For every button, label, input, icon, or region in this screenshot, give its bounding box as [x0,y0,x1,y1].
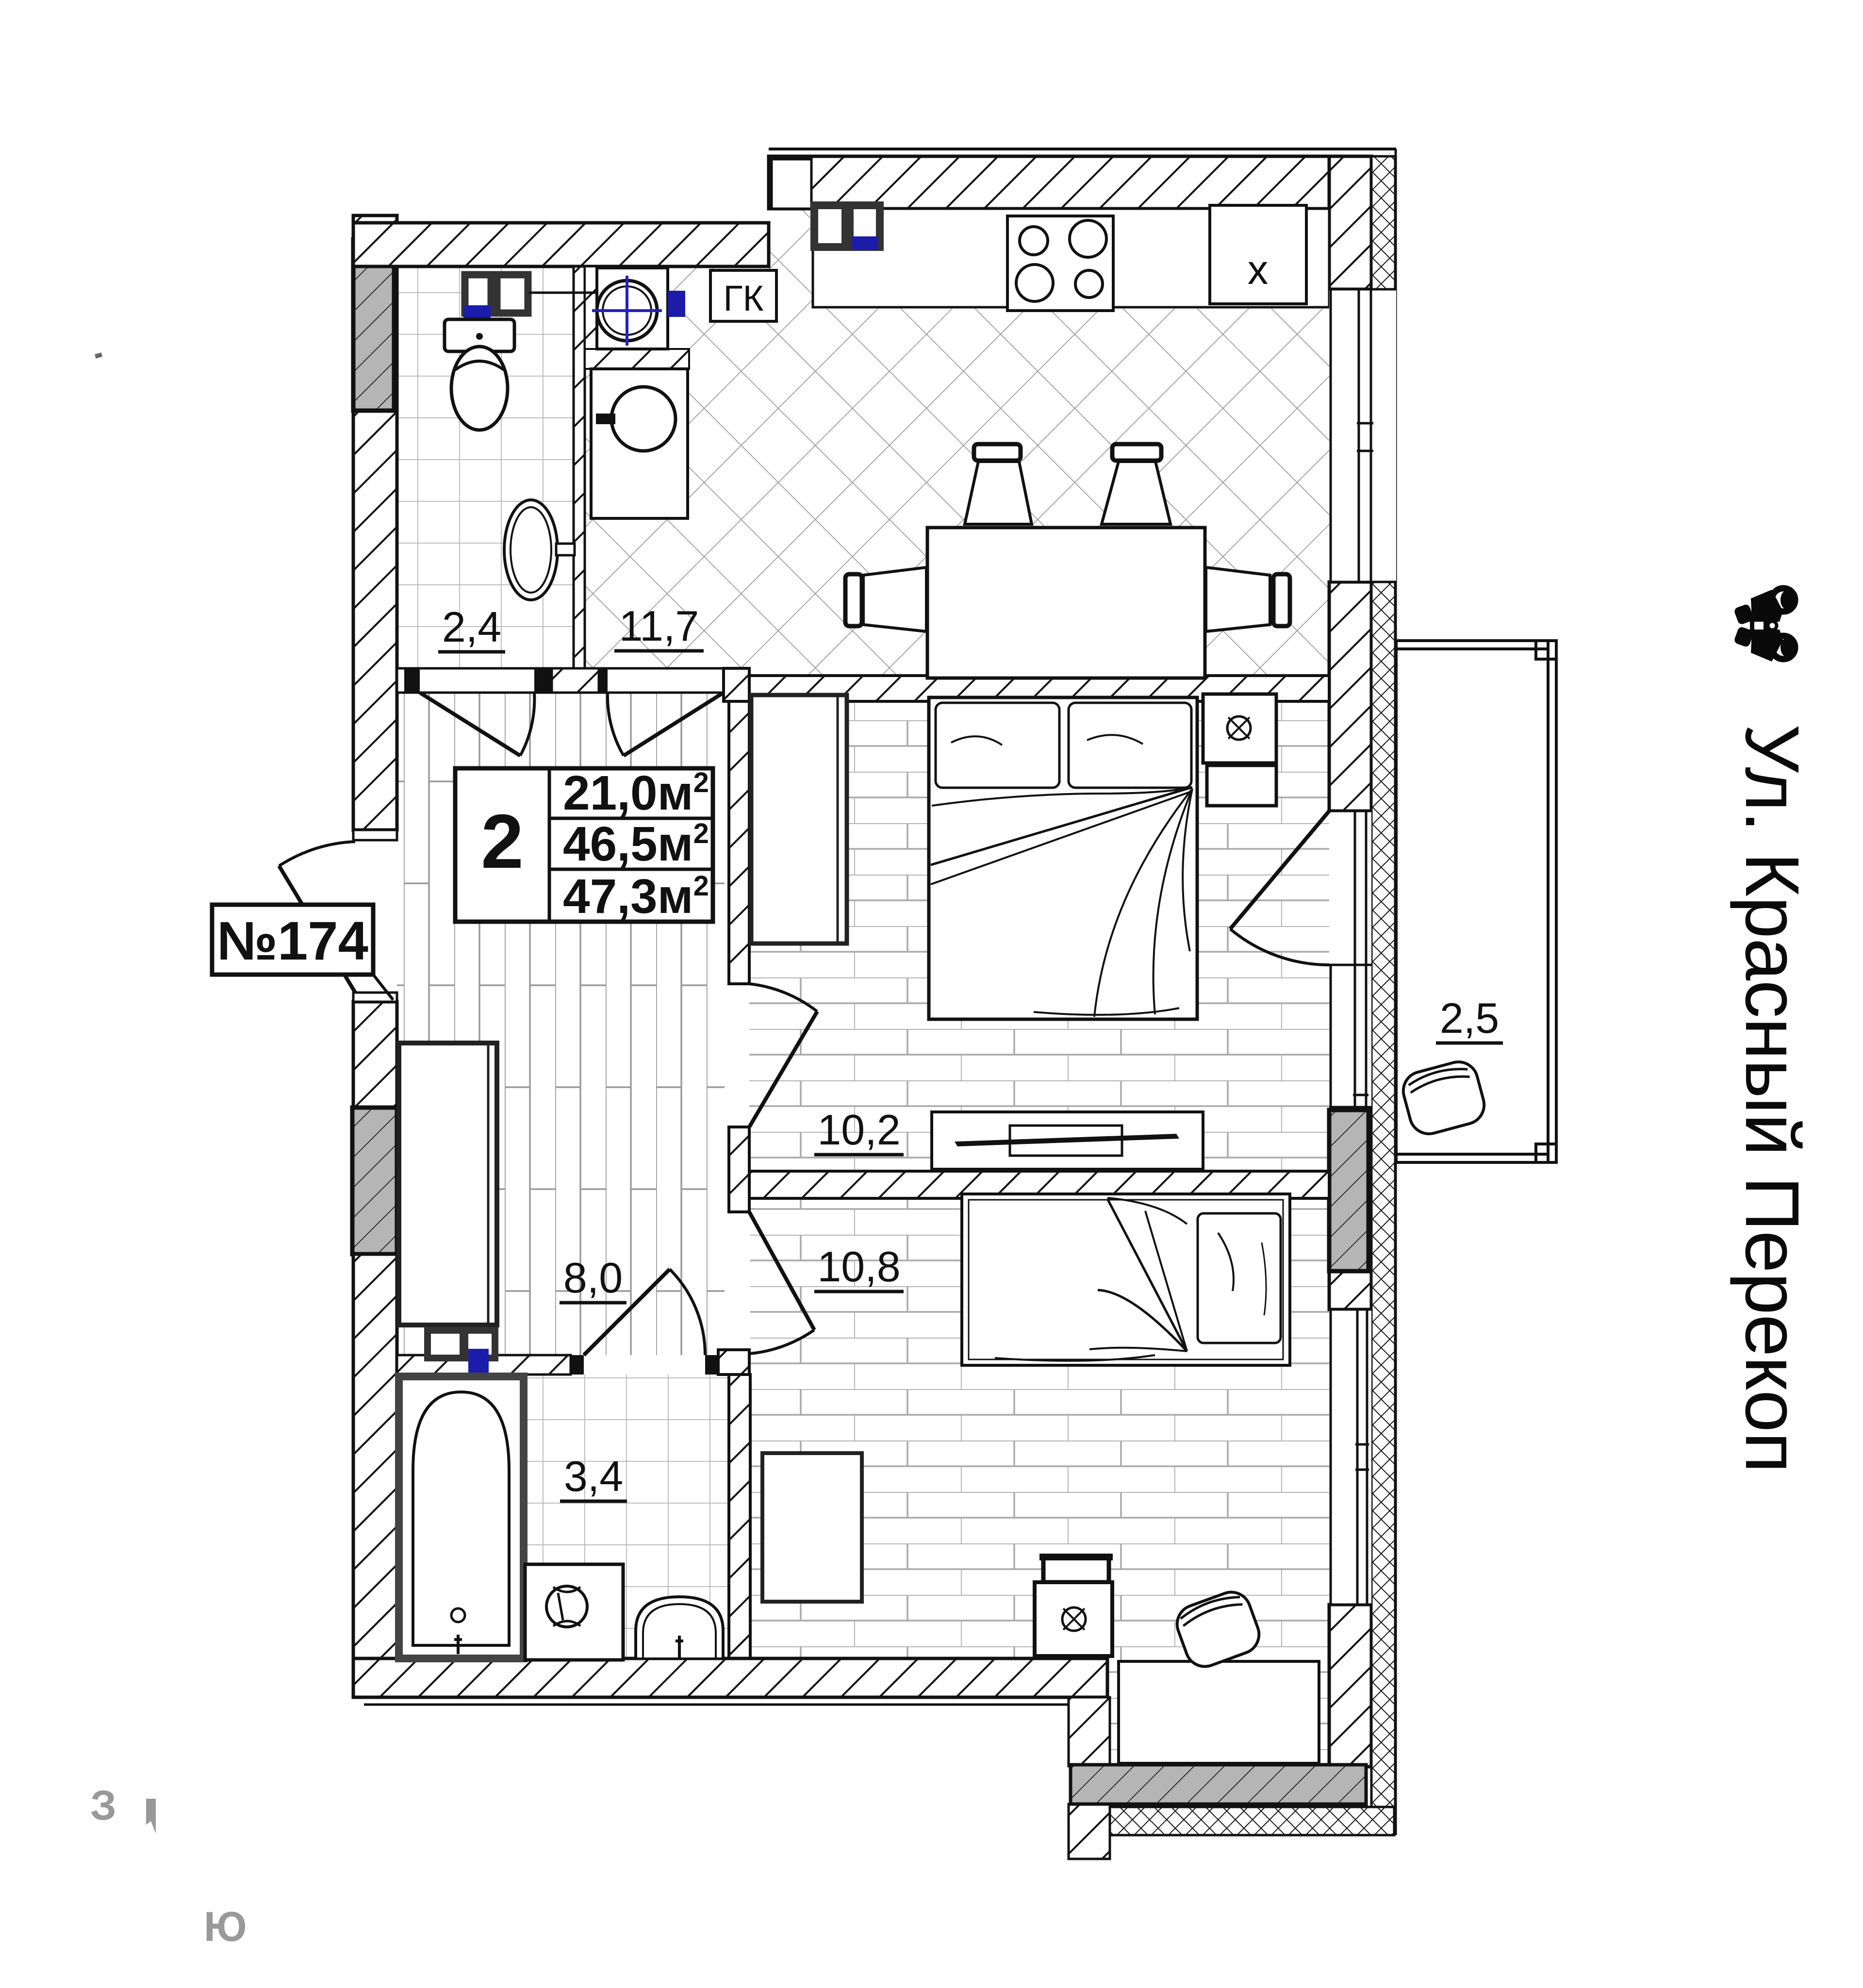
svg-text:Ю: Ю [204,1904,247,1950]
svg-text:10,2: 10,2 [817,1106,900,1154]
svg-text:21,0м2: 21,0м2 [563,766,709,820]
svg-text:ГК: ГК [723,278,763,318]
svg-text:10,8: 10,8 [817,1242,900,1291]
svg-text:2: 2 [481,799,524,884]
svg-text:2,4: 2,4 [442,603,501,651]
svg-text:№174: №174 [217,911,368,971]
svg-text:2,5: 2,5 [1440,994,1499,1042]
svg-text:З: З [90,1782,116,1829]
svg-text:Ул. Красный Перекоп: Ул. Красный Перекоп [1730,724,1814,1473]
svg-text:x: x [1248,247,1269,293]
svg-text:47,3м2: 47,3м2 [563,869,709,924]
svg-text:8,0: 8,0 [563,1254,623,1302]
svg-text:11,7: 11,7 [619,602,699,650]
svg-text:3,4: 3,4 [564,1452,623,1500]
svg-text:46,5м2: 46,5м2 [563,817,709,871]
